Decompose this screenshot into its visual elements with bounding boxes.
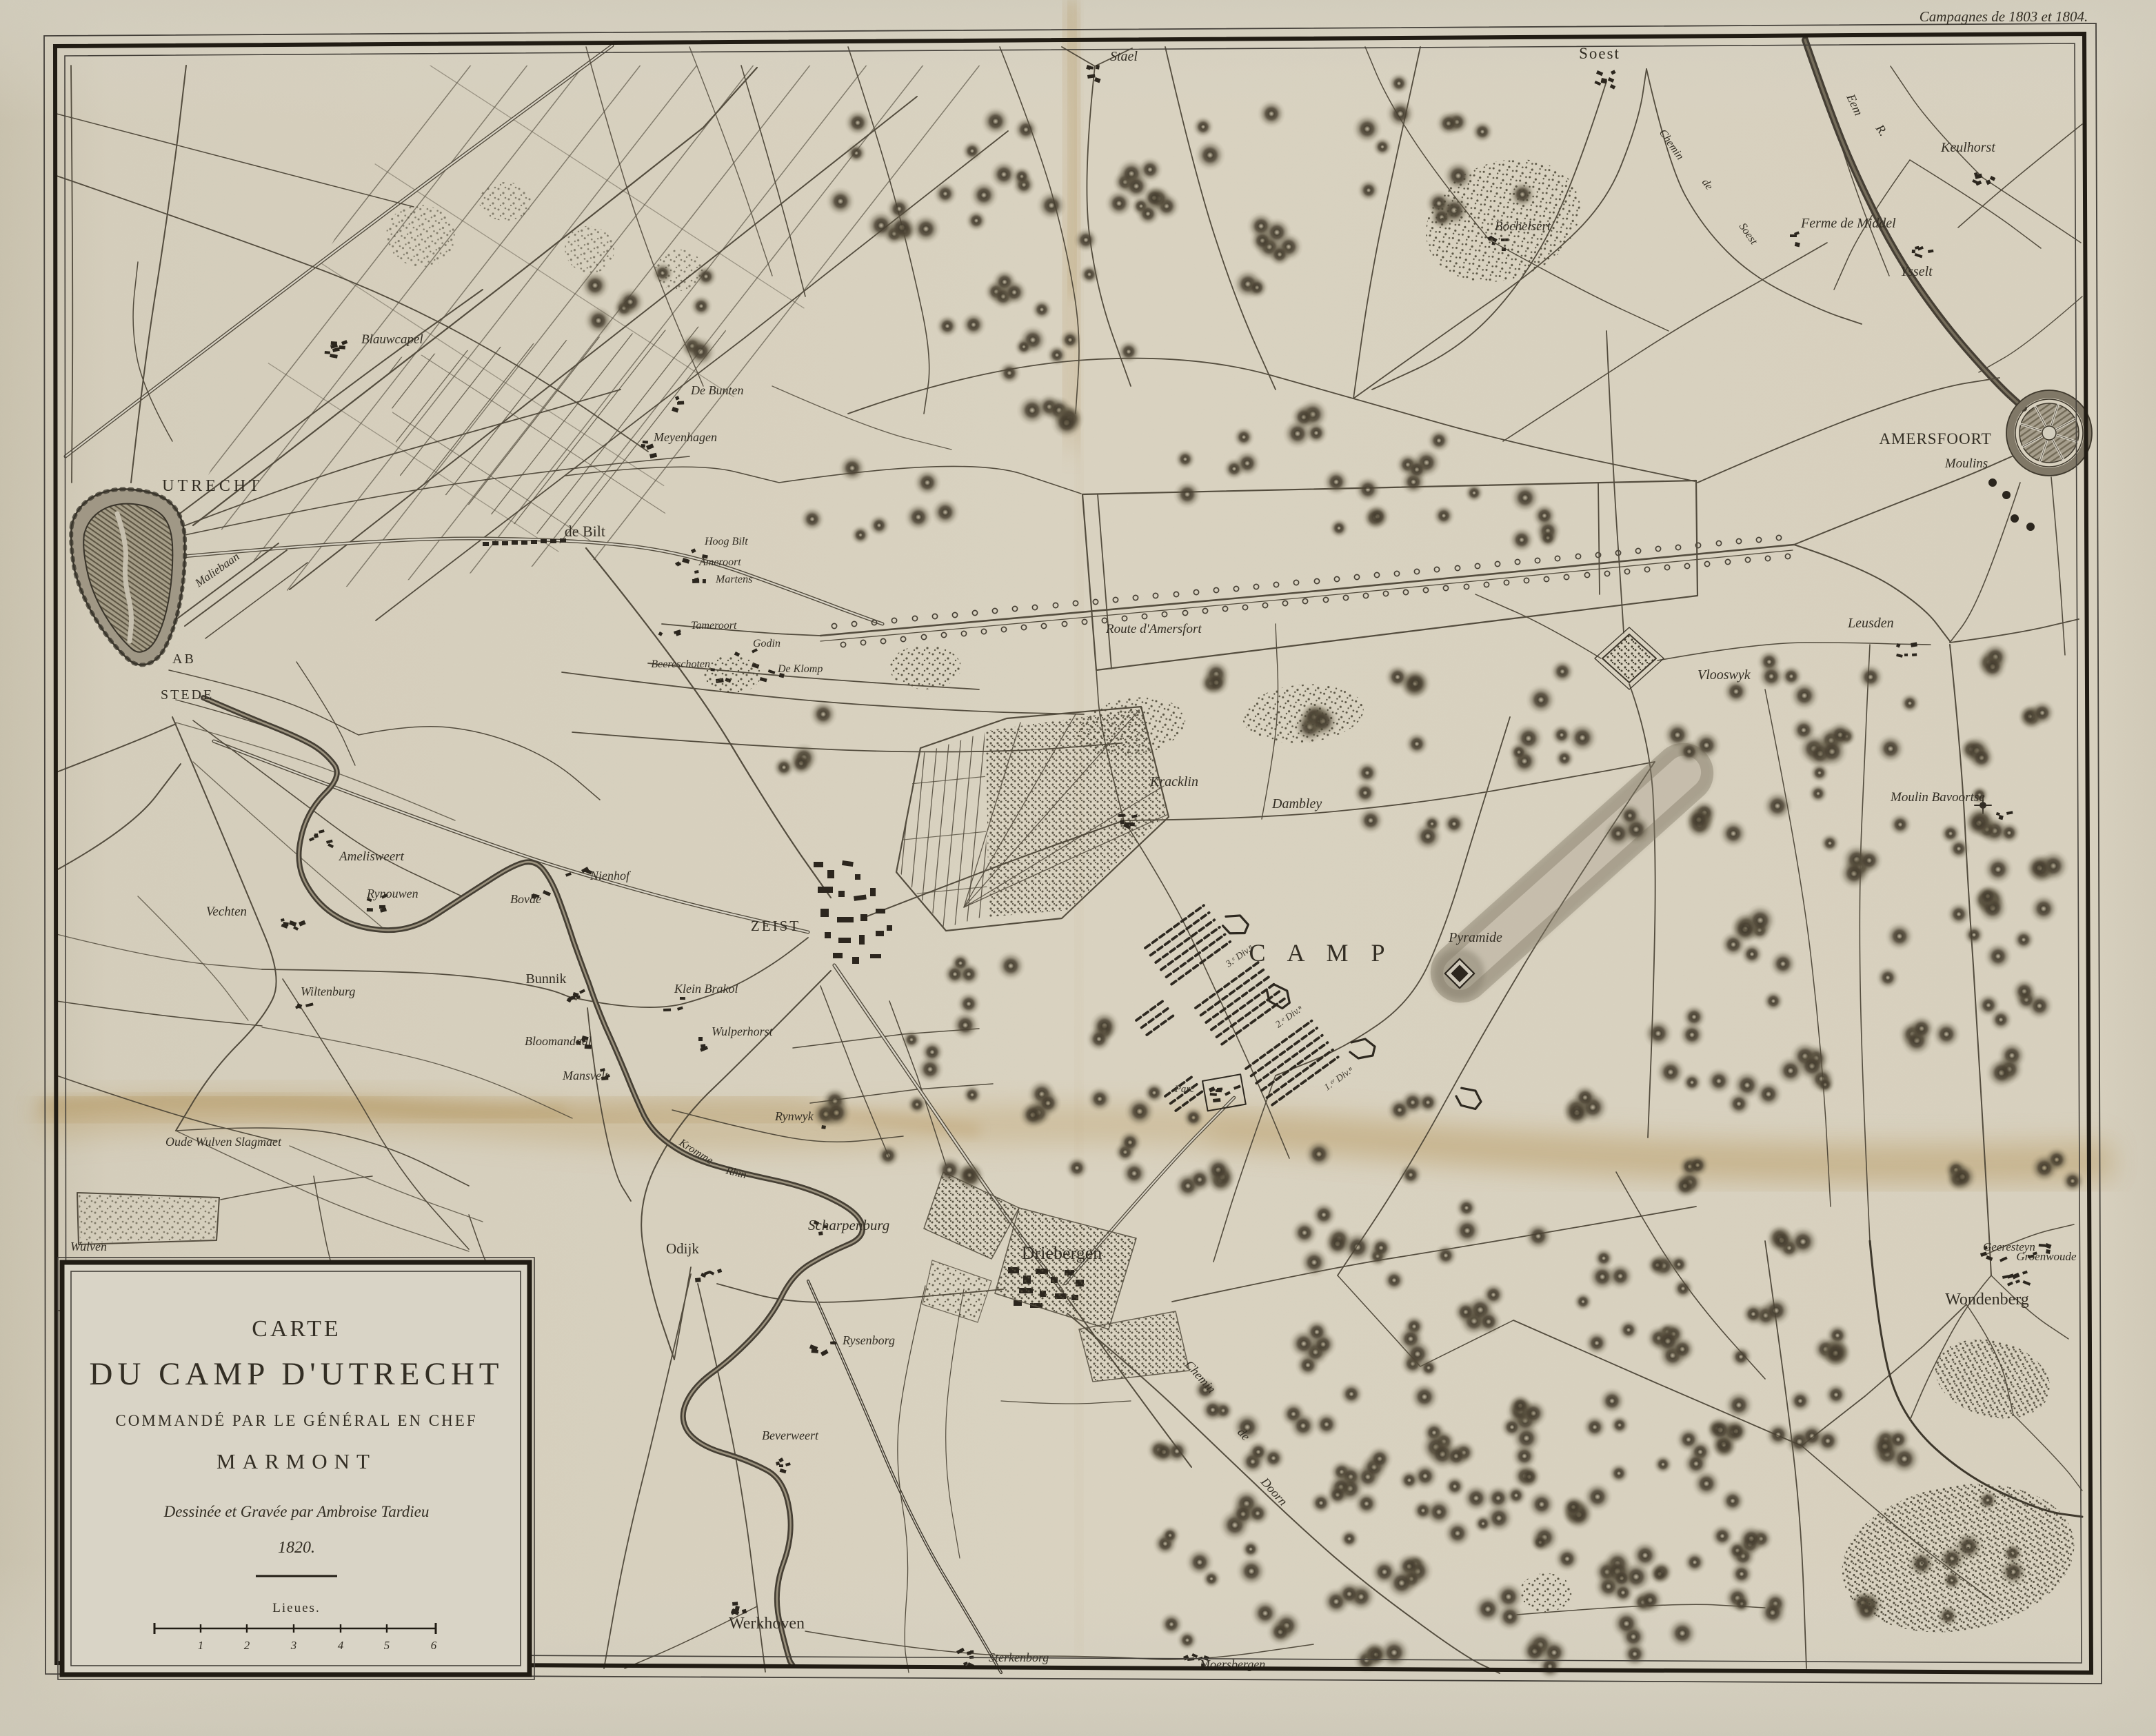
svg-text:Beverweert: Beverweert bbox=[762, 1429, 819, 1442]
svg-text:Meyenhagen: Meyenhagen bbox=[653, 430, 717, 444]
svg-text:MARMONT: MARMONT bbox=[216, 1449, 376, 1473]
svg-text:Bunnik: Bunnik bbox=[526, 971, 567, 987]
svg-text:1: 1 bbox=[198, 1639, 204, 1652]
svg-text:Nienhof: Nienhof bbox=[590, 869, 632, 882]
svg-text:Wulven: Wulven bbox=[70, 1240, 107, 1253]
svg-text:Moulin Bavoortse: Moulin Bavoortse bbox=[1890, 790, 1985, 805]
svg-text:Werkhoven: Werkhoven bbox=[729, 1615, 805, 1633]
svg-text:Pyramide: Pyramide bbox=[1448, 930, 1502, 945]
svg-text:Scharpenburg: Scharpenburg bbox=[808, 1217, 889, 1233]
svg-text:Groenwoude: Groenwoude bbox=[2016, 1250, 2077, 1263]
svg-text:Bloomandaal: Bloomandaal bbox=[525, 1034, 592, 1048]
svg-text:Parc: Parc bbox=[1174, 1084, 1195, 1095]
svg-text:Vlooswyk: Vlooswyk bbox=[1697, 667, 1751, 683]
svg-text:Ysselt: Ysselt bbox=[1900, 264, 1933, 279]
svg-text:Bovde: Bovde bbox=[510, 892, 541, 906]
svg-text:Martens: Martens bbox=[715, 574, 752, 585]
svg-text:Wondenberg: Wondenberg bbox=[1945, 1291, 2029, 1309]
svg-text:Mansvelt: Mansvelt bbox=[562, 1069, 609, 1082]
svg-text:Bochelsert: Bochelsert bbox=[1495, 219, 1551, 234]
svg-text:C A M P: C A M P bbox=[1249, 939, 1393, 967]
svg-text:5: 5 bbox=[384, 1639, 390, 1652]
svg-text:Amelisweert: Amelisweert bbox=[338, 849, 405, 864]
svg-text:ZEIST: ZEIST bbox=[751, 918, 800, 934]
svg-text:De Klomp: De Klomp bbox=[777, 663, 823, 675]
svg-text:Ameroort: Ameroort bbox=[698, 556, 741, 568]
svg-text:de Bilt: de Bilt bbox=[565, 523, 605, 540]
svg-text:1820.: 1820. bbox=[278, 1539, 315, 1557]
svg-text:Leusden: Leusden bbox=[1847, 616, 1894, 631]
svg-text:Hoog Bilt: Hoog Bilt bbox=[704, 536, 748, 547]
svg-text:Rynouwen: Rynouwen bbox=[366, 887, 419, 900]
svg-text:Dessinée et Gravée par Ambrois: Dessinée et Gravée par Ambroise Tardieu bbox=[163, 1503, 430, 1520]
svg-text:Oude Wulven Slagmaet: Oude Wulven Slagmaet bbox=[165, 1135, 282, 1149]
svg-text:Wiltenburg: Wiltenburg bbox=[301, 985, 355, 998]
svg-text:CARTE: CARTE bbox=[252, 1316, 341, 1342]
svg-text:Campagnes de 1803 et 1804.: Campagnes de 1803 et 1804. bbox=[1920, 8, 2088, 25]
svg-text:Blauwcapel: Blauwcapel bbox=[361, 332, 423, 347]
svg-text:Vechten: Vechten bbox=[206, 905, 247, 919]
svg-text:Godin: Godin bbox=[753, 638, 780, 649]
svg-text:2: 2 bbox=[244, 1639, 250, 1652]
svg-text:Dambley: Dambley bbox=[1271, 796, 1322, 811]
svg-text:UTRECHT: UTRECHT bbox=[162, 477, 263, 495]
svg-text:6: 6 bbox=[431, 1639, 437, 1652]
svg-text:Stael: Stael bbox=[1110, 49, 1138, 64]
svg-text:Keulhorst: Keulhorst bbox=[1940, 140, 1995, 155]
svg-text:Lieues.: Lieues. bbox=[272, 1601, 320, 1615]
svg-text:Wulperhorst: Wulperhorst bbox=[712, 1025, 774, 1038]
svg-text:AMERSFOORT: AMERSFOORT bbox=[1879, 430, 1991, 447]
svg-text:De Bunten: De Bunten bbox=[690, 383, 743, 397]
svg-text:Klein Brakol: Klein Brakol bbox=[674, 982, 738, 996]
svg-text:COMMANDÉ PAR LE GÉNÉRAL EN CHE: COMMANDÉ PAR LE GÉNÉRAL EN CHEF bbox=[115, 1412, 477, 1429]
svg-text:Route d'Amersfort: Route d'Amersfort bbox=[1105, 622, 1202, 636]
svg-text:Odijk: Odijk bbox=[666, 1240, 699, 1257]
svg-text:Moulins: Moulins bbox=[1944, 456, 1988, 471]
svg-text:Ferme de Middel: Ferme de Middel bbox=[1800, 216, 1896, 231]
svg-text:Kracklin: Kracklin bbox=[1149, 774, 1198, 789]
svg-text:STEDE: STEDE bbox=[161, 687, 214, 703]
svg-text:Tameroort: Tameroort bbox=[691, 620, 737, 632]
svg-text:Driebergen: Driebergen bbox=[1022, 1243, 1102, 1263]
svg-text:Rysenborg: Rysenborg bbox=[842, 1333, 895, 1347]
svg-text:Soest: Soest bbox=[1579, 45, 1620, 62]
svg-text:Rynwyk: Rynwyk bbox=[774, 1109, 814, 1123]
svg-text:DU CAMP D'UTRECHT: DU CAMP D'UTRECHT bbox=[90, 1356, 504, 1392]
svg-text:Beereschoten: Beereschoten bbox=[651, 658, 710, 670]
svg-text:4: 4 bbox=[338, 1639, 344, 1652]
svg-text:3: 3 bbox=[290, 1639, 297, 1652]
svg-text:AB: AB bbox=[172, 652, 196, 667]
